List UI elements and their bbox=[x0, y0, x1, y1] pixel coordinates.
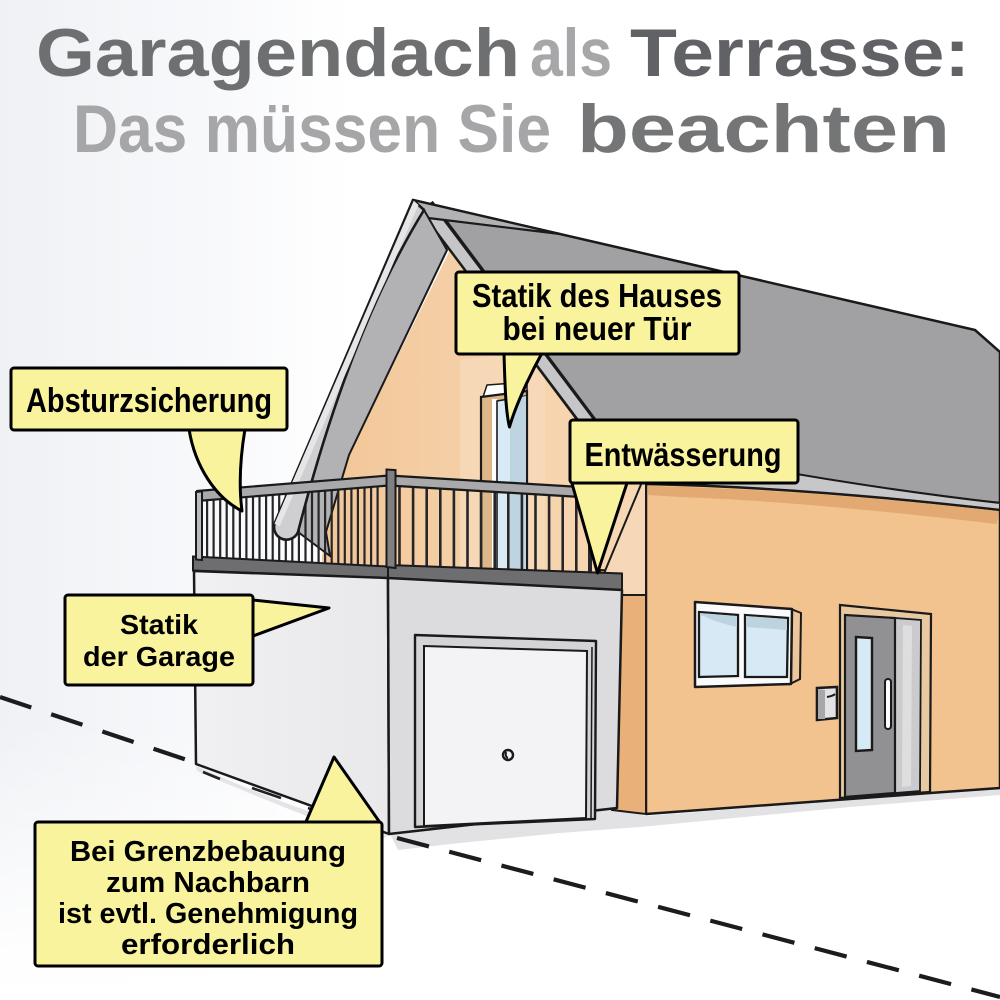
svg-text:bei neuer Tür: bei neuer Tür bbox=[503, 310, 692, 347]
svg-text:Bei Grenzbebauung: Bei Grenzbebauung bbox=[70, 836, 346, 868]
svg-text:Statik: Statik bbox=[120, 609, 198, 640]
svg-text:erforderlich: erforderlich bbox=[121, 929, 295, 961]
svg-text:Entwässerung: Entwässerung bbox=[585, 436, 782, 473]
svg-text:der Garage: der Garage bbox=[83, 641, 235, 672]
svg-text:Absturzsicherung: Absturzsicherung bbox=[26, 382, 272, 420]
svg-text:Terrasse:: Terrasse: bbox=[630, 15, 970, 91]
svg-text:Das müssen Sie: Das müssen Sie bbox=[73, 91, 551, 167]
svg-text:Garagendach: Garagendach bbox=[36, 15, 520, 91]
svg-text:als: als bbox=[530, 15, 612, 91]
svg-text:beachten: beachten bbox=[577, 91, 950, 167]
svg-text:Statik des Hauses: Statik des Hauses bbox=[472, 277, 722, 314]
svg-text:ist evtl. Genehmigung: ist evtl. Genehmigung bbox=[58, 898, 358, 930]
svg-text:zum Nachbarn: zum Nachbarn bbox=[106, 867, 310, 899]
